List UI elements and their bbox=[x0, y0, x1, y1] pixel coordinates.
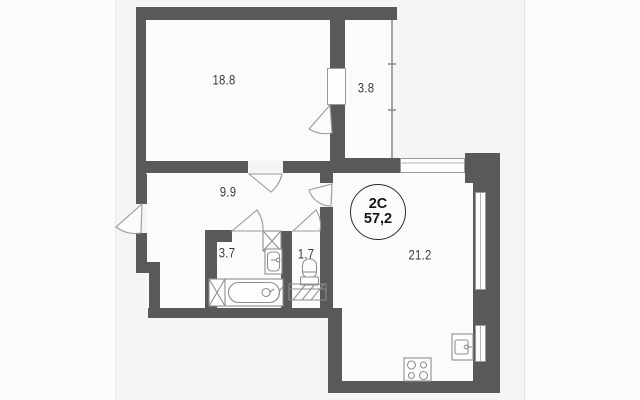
label-kitchen-area: 21.2 bbox=[408, 248, 431, 263]
label-balcony-area: 3.8 bbox=[358, 81, 375, 96]
wall-hall-left-1 bbox=[136, 174, 147, 204]
wall-hall-kitchen-lower bbox=[320, 207, 333, 308]
wall-bathroom-wc bbox=[281, 231, 292, 308]
unit-badge: 2C 57,2 bbox=[350, 184, 406, 240]
wall-hall-kitchen-upper bbox=[320, 173, 333, 183]
label-hall-area: 9.9 bbox=[220, 185, 237, 200]
label-bathroom-area: 3.7 bbox=[219, 246, 236, 261]
wall-hall-bottom bbox=[148, 308, 333, 318]
wall-hall-left-3 bbox=[149, 273, 160, 309]
unit-total-area: 57,2 bbox=[364, 212, 392, 227]
wall-divider-living-hall-left bbox=[146, 161, 248, 173]
window-right-large bbox=[475, 192, 486, 290]
label-wc-area: 1.7 bbox=[298, 247, 315, 262]
wall-divider-living-hall-right bbox=[283, 161, 333, 173]
wall-hall-left-2 bbox=[136, 233, 147, 263]
wall-under-balcony bbox=[330, 158, 400, 173]
wall-left-upper bbox=[136, 7, 146, 174]
window-kitchen-top bbox=[400, 158, 465, 173]
label-living-area: 18.8 bbox=[212, 73, 235, 88]
room-living bbox=[146, 20, 330, 161]
wall-top bbox=[136, 7, 397, 20]
window-right-small bbox=[475, 325, 486, 362]
wall-hall-step bbox=[136, 262, 160, 273]
wall-bathroom-top bbox=[205, 230, 232, 242]
unit-type: 2C bbox=[369, 197, 388, 212]
wall-kitchen-left-lower bbox=[328, 308, 342, 389]
wall-bottom-kitchen bbox=[328, 381, 500, 393]
floor-plan: 18.8 3.8 9.9 3.7 1.7 21.2 2C 57,2 bbox=[0, 0, 640, 400]
balcony-door-frame bbox=[327, 68, 346, 105]
